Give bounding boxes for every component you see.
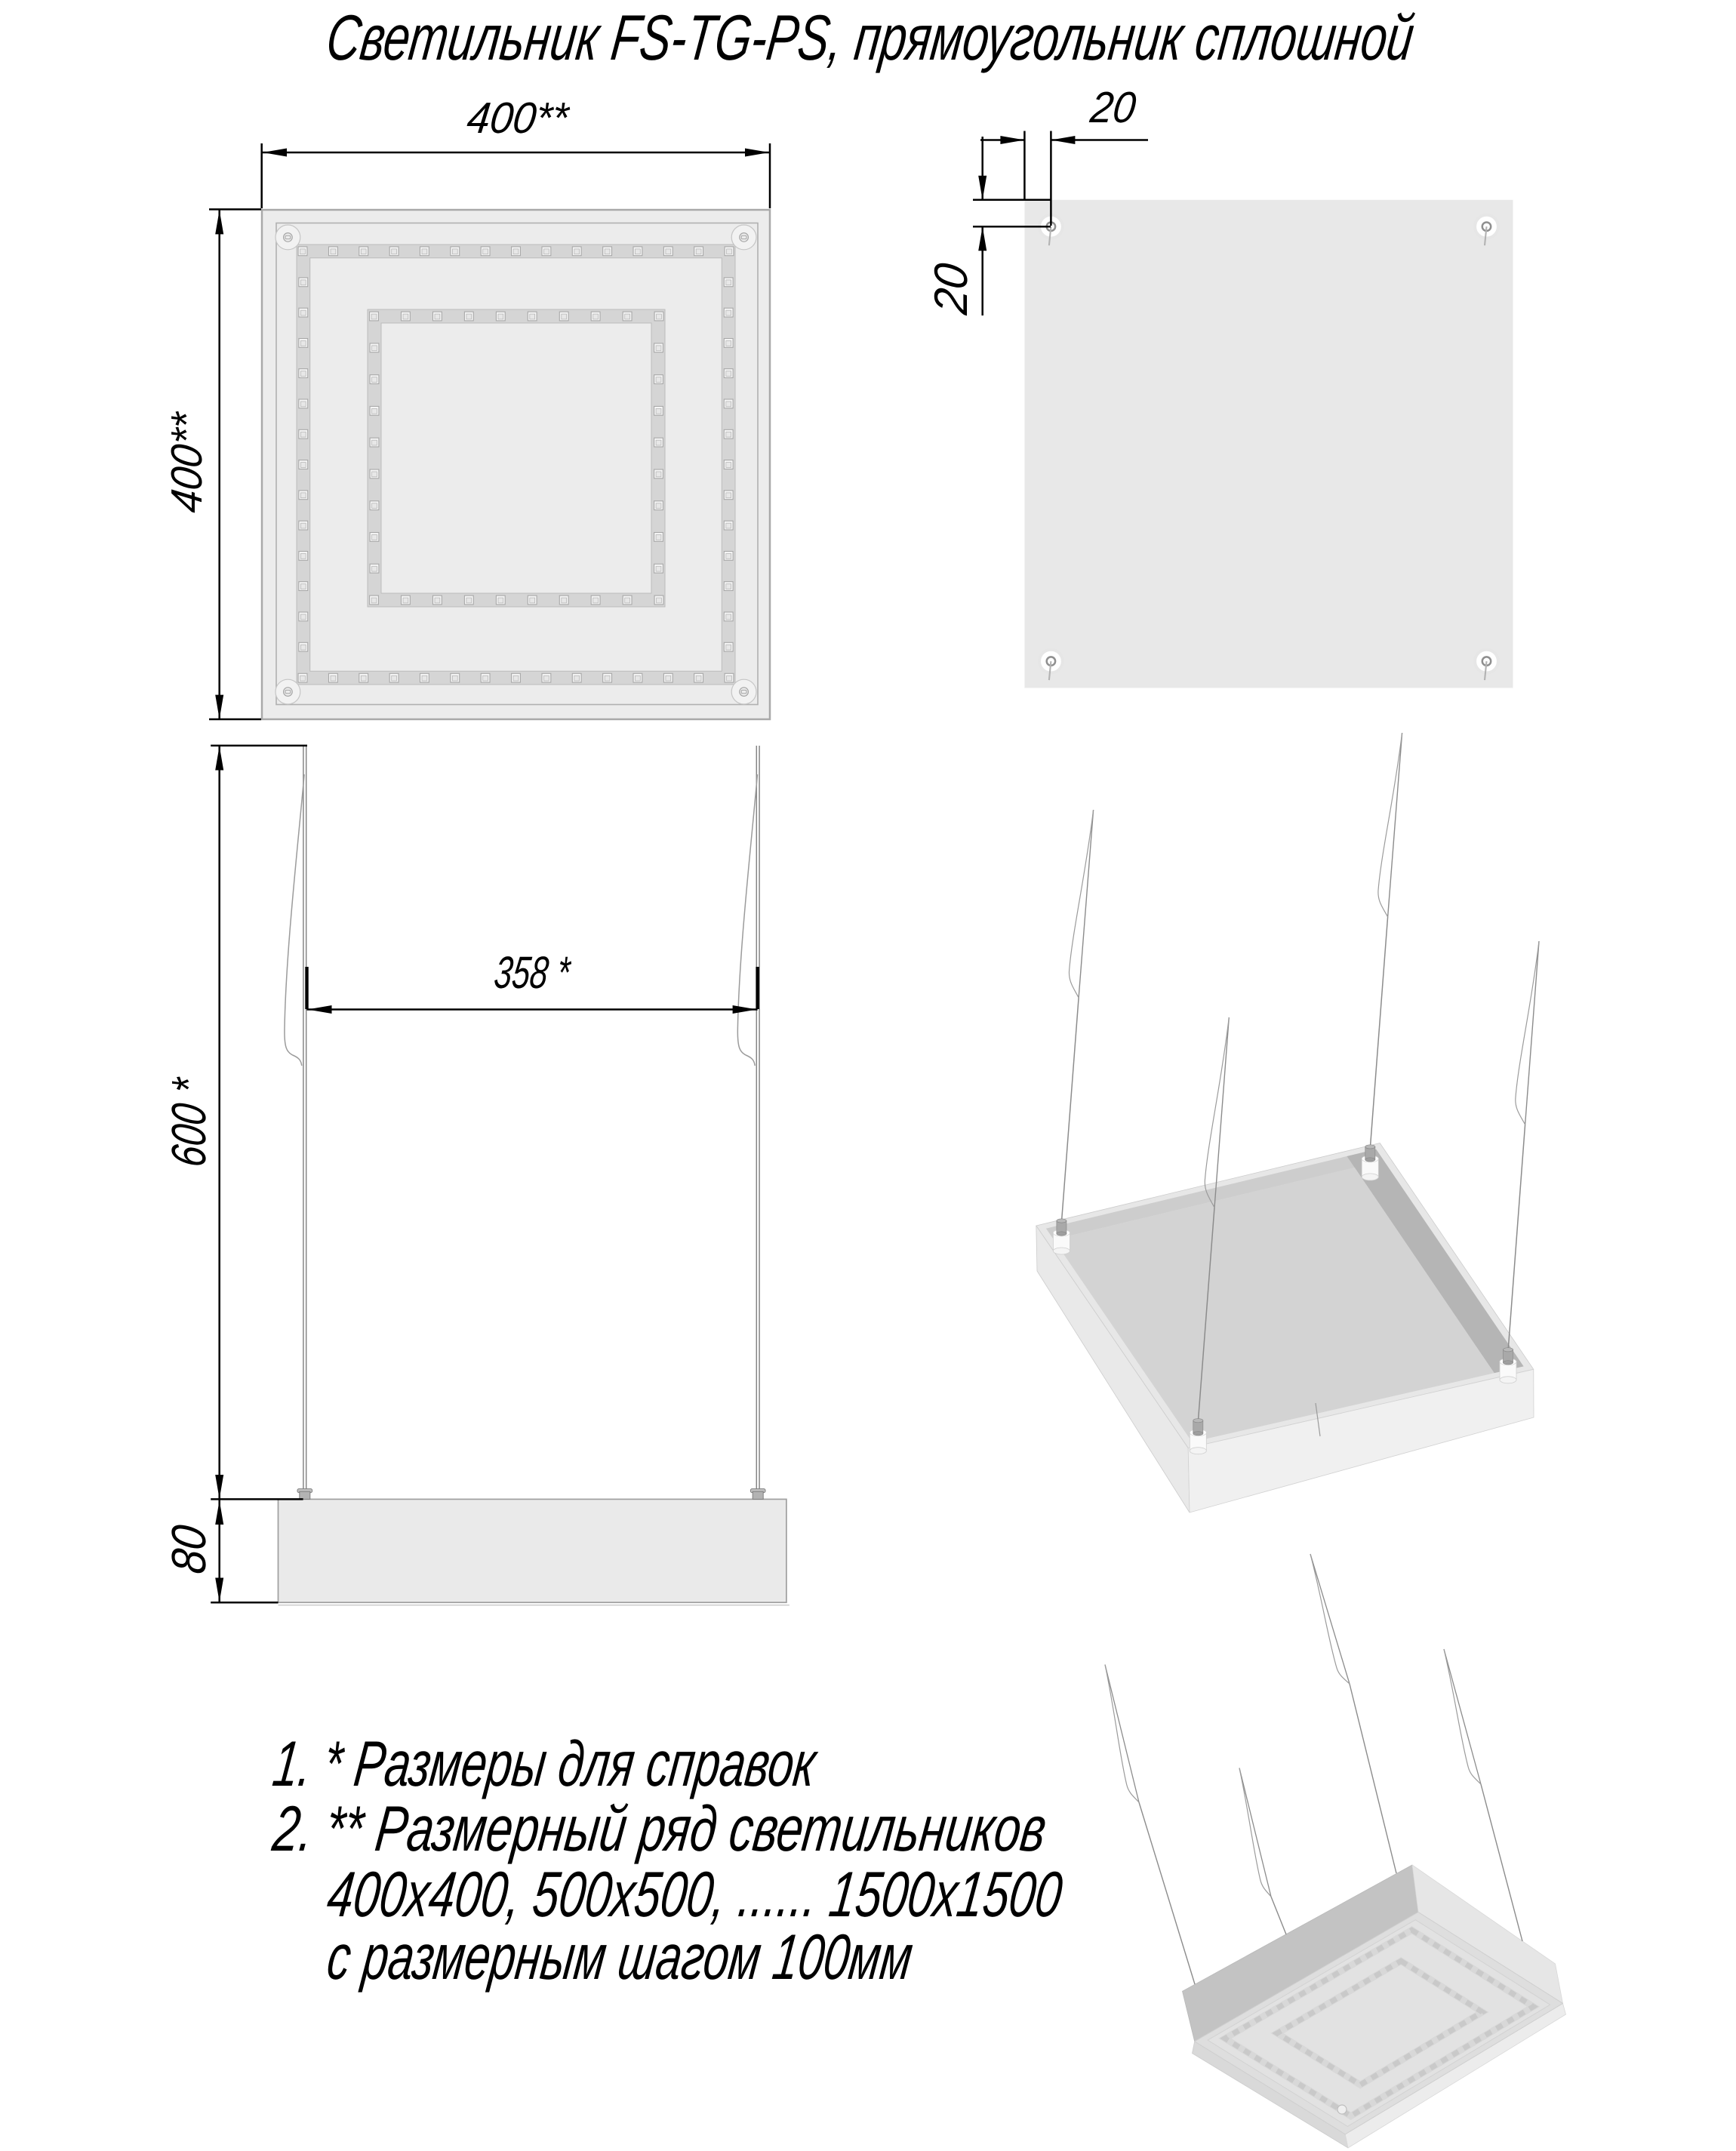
svg-text:600 *: 600 * — [162, 1074, 216, 1169]
svg-text:Светильник FS-TG-PS, прямоугол: Светильник FS-TG-PS, прямоугольник сплош… — [323, 2, 1418, 74]
svg-text:400**: 400** — [162, 408, 211, 515]
svg-text:358 *: 358 * — [491, 946, 574, 998]
svg-text:400**: 400** — [464, 94, 572, 143]
svg-text:2. ** Размерный ряд светильни: 2. ** Размерный ряд светильников — [269, 1793, 1050, 1865]
svg-text:20: 20 — [1087, 83, 1138, 132]
svg-text:400х400, 500х500, ...... 1500х: 400х400, 500х500, ...... 1500х1500 — [324, 1859, 1067, 1931]
svg-text:20: 20 — [925, 260, 977, 318]
svg-text:с размерным шагом 100мм: с размерным шагом 100мм — [324, 1922, 917, 1993]
svg-text:1. * Размеры для справок: 1. * Размеры для справок — [269, 1728, 822, 1800]
svg-text:80: 80 — [162, 1522, 216, 1577]
